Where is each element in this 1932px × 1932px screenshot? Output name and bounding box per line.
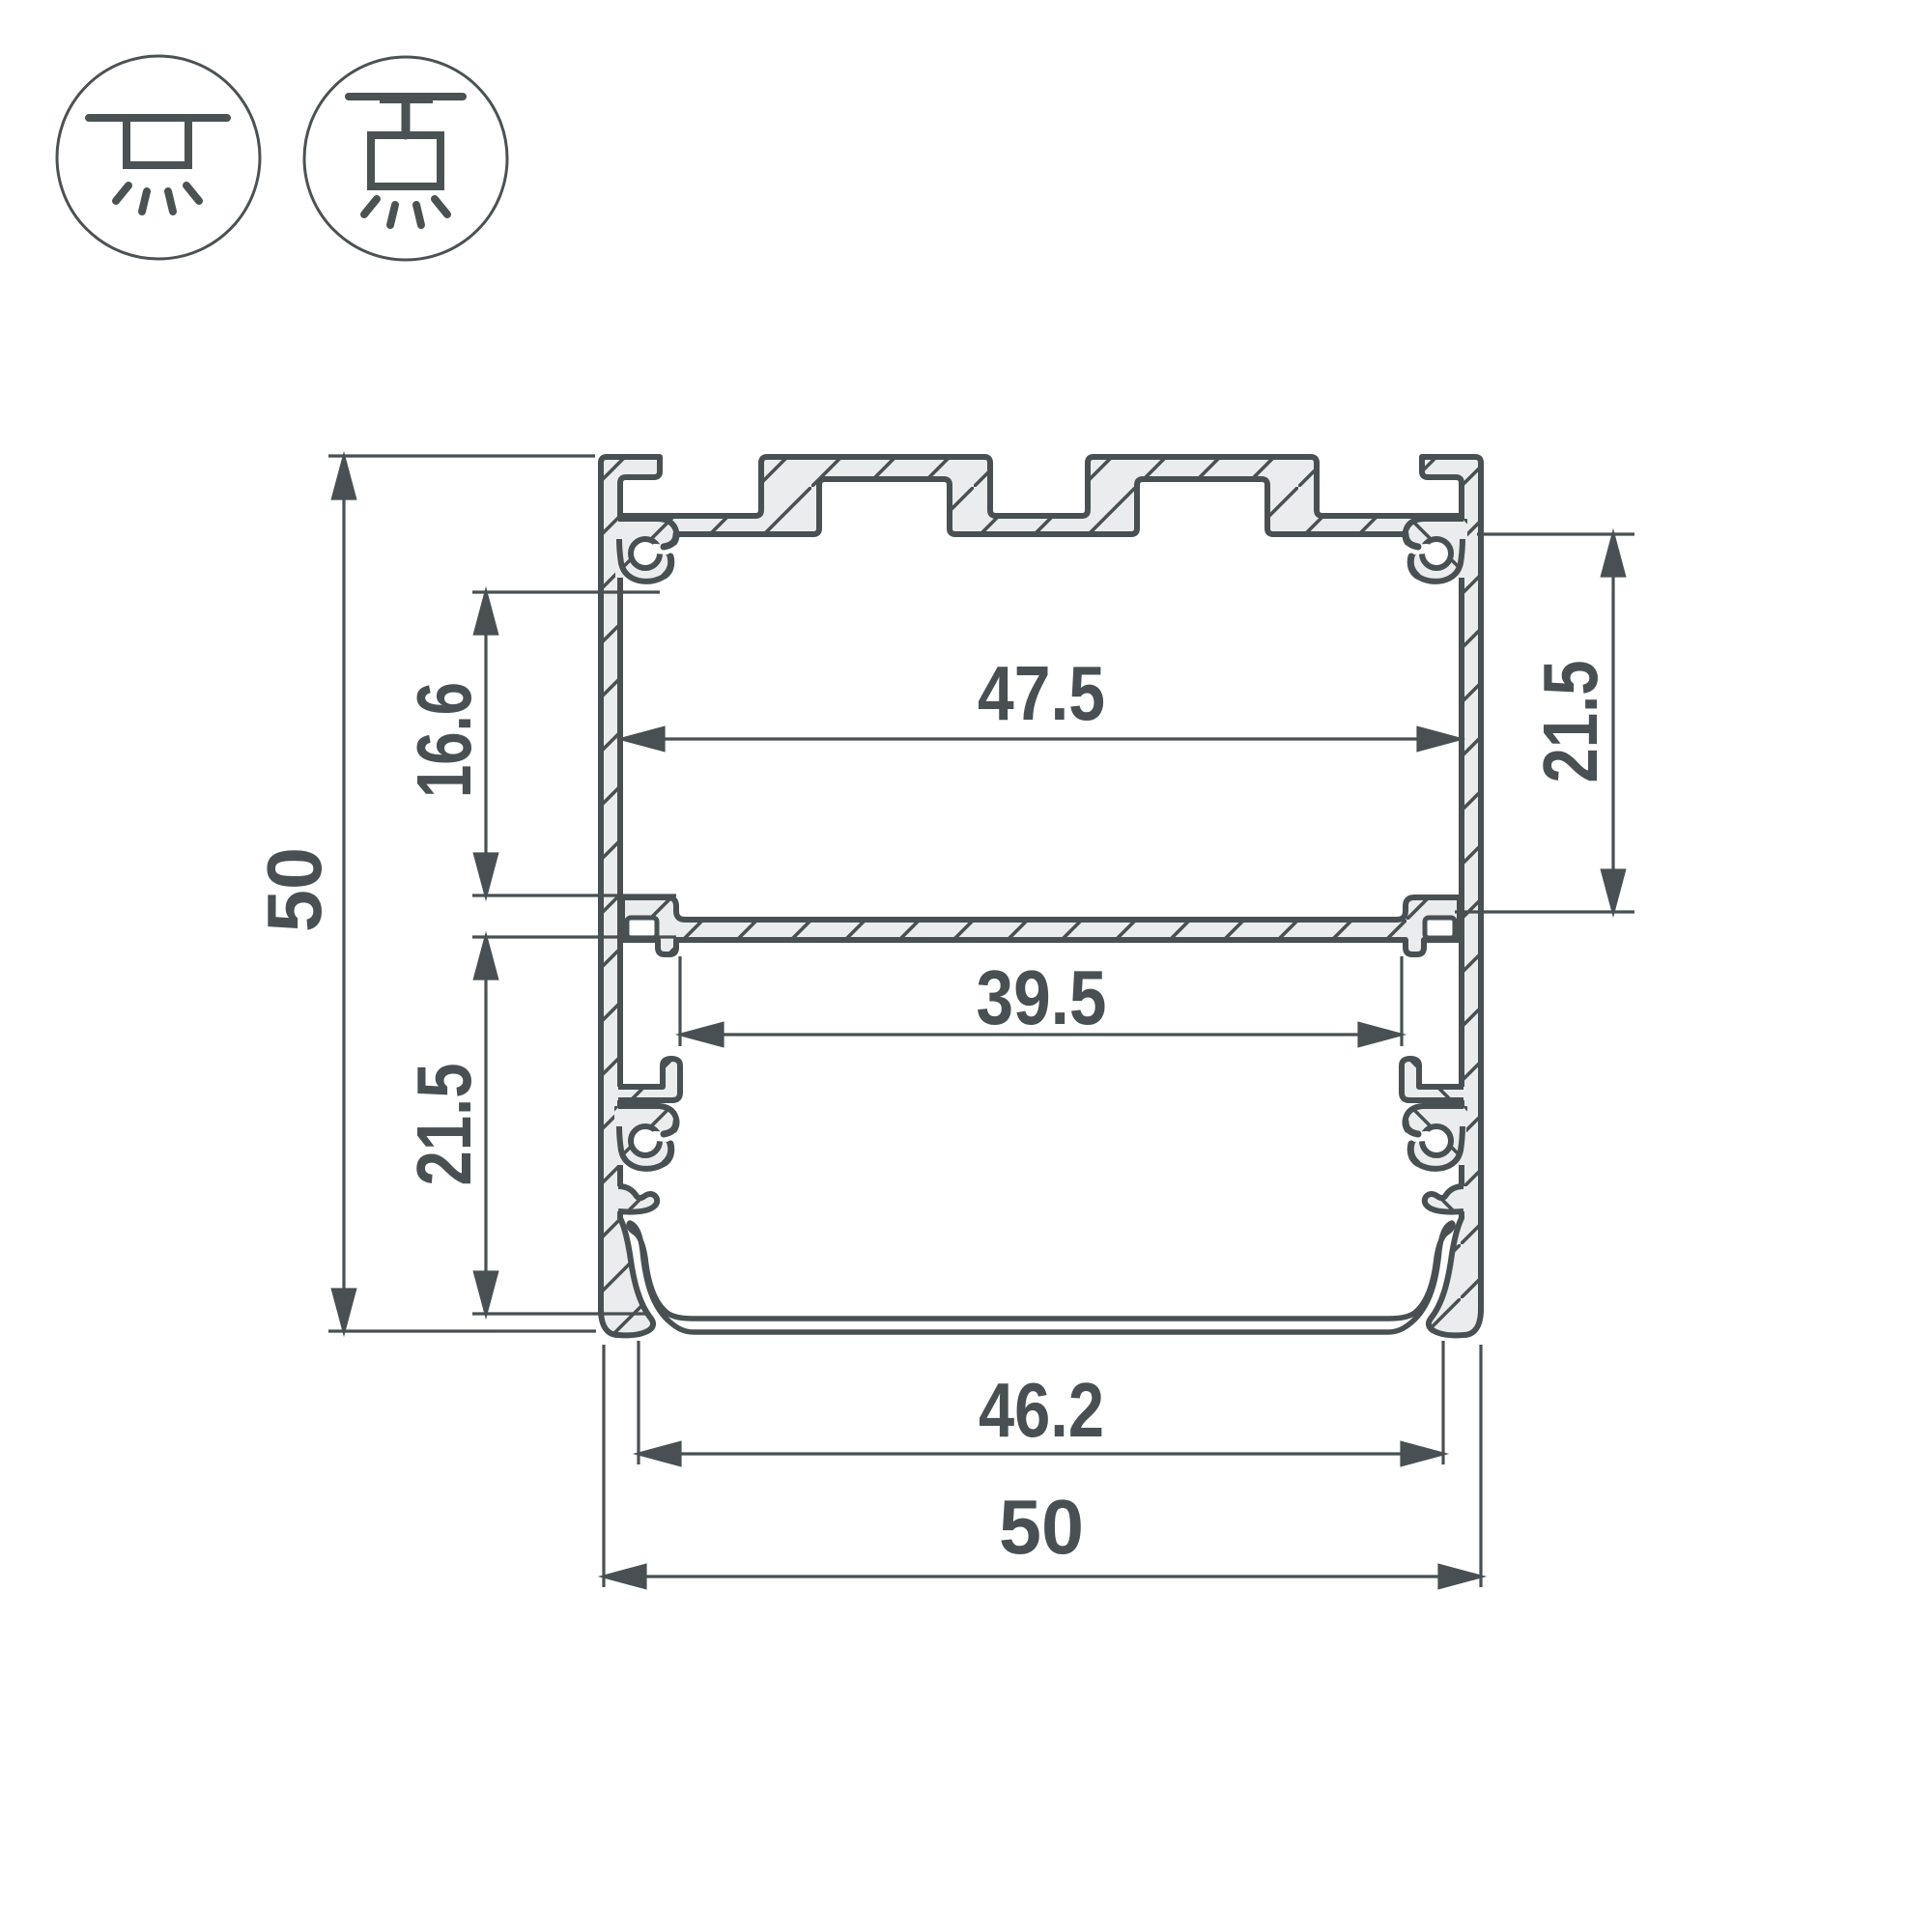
svg-text:47.5: 47.5: [978, 650, 1105, 736]
svg-text:50: 50: [999, 1484, 1084, 1570]
svg-text:39.5: 39.5: [977, 954, 1107, 1040]
svg-text:16.6: 16.6: [401, 682, 487, 798]
svg-text:50: 50: [251, 847, 337, 932]
svg-text:21.5: 21.5: [401, 1064, 487, 1186]
svg-text:46.2: 46.2: [979, 1367, 1104, 1453]
svg-text:21.5: 21.5: [1527, 661, 1613, 783]
